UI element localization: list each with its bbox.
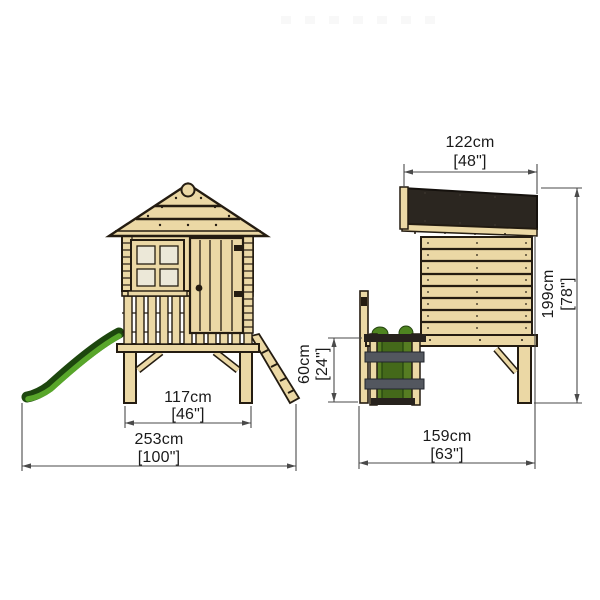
label-step-height-imperial: [24"] — [314, 309, 332, 419]
door-hinge-bottom — [234, 291, 244, 297]
ladder-step — [365, 379, 424, 389]
door — [190, 238, 244, 333]
label-stilt-base-width-metric: 117cm — [133, 389, 243, 407]
front-view — [27, 182, 299, 403]
ladder-step — [365, 352, 424, 362]
dim-step-height — [328, 338, 362, 402]
side-wall — [421, 237, 532, 335]
label-step-height-metric: 60cm — [296, 309, 314, 419]
door-knob — [196, 285, 203, 292]
label-overall-width-metric: 253cm — [104, 431, 214, 449]
diagram-drawing — [0, 0, 600, 600]
ladder-top-rail — [364, 334, 426, 342]
slide — [27, 333, 119, 399]
side-leg — [496, 346, 531, 403]
label-roof-depth-imperial: [48"] — [415, 153, 525, 171]
label-roof-depth-metric: 122cm — [415, 134, 525, 152]
deck-board — [117, 344, 259, 352]
label-overall-depth-imperial: [63"] — [392, 446, 502, 464]
label-overall-height-metric: 199cm — [540, 239, 558, 349]
ladder-bottom-rail — [371, 398, 415, 405]
apex-ornament — [182, 184, 195, 197]
side-view — [360, 187, 537, 405]
watermark-squares — [281, 16, 435, 24]
label-overall-width-imperial: [100"] — [104, 449, 214, 467]
label-overall-depth-metric: 159cm — [392, 428, 502, 446]
playhouse-dimension-diagram: 122cm [48"] 199cm [78"] 60cm [24"] 159cm… — [0, 0, 600, 600]
label-overall-height-imperial: [78"] — [559, 239, 577, 349]
window — [128, 240, 187, 296]
label-stilt-base-width-imperial: [46"] — [133, 406, 243, 424]
gabled-roof — [109, 182, 267, 236]
side-roof — [400, 187, 537, 236]
step-ladder — [364, 334, 426, 405]
door-hinge-top — [234, 245, 244, 251]
